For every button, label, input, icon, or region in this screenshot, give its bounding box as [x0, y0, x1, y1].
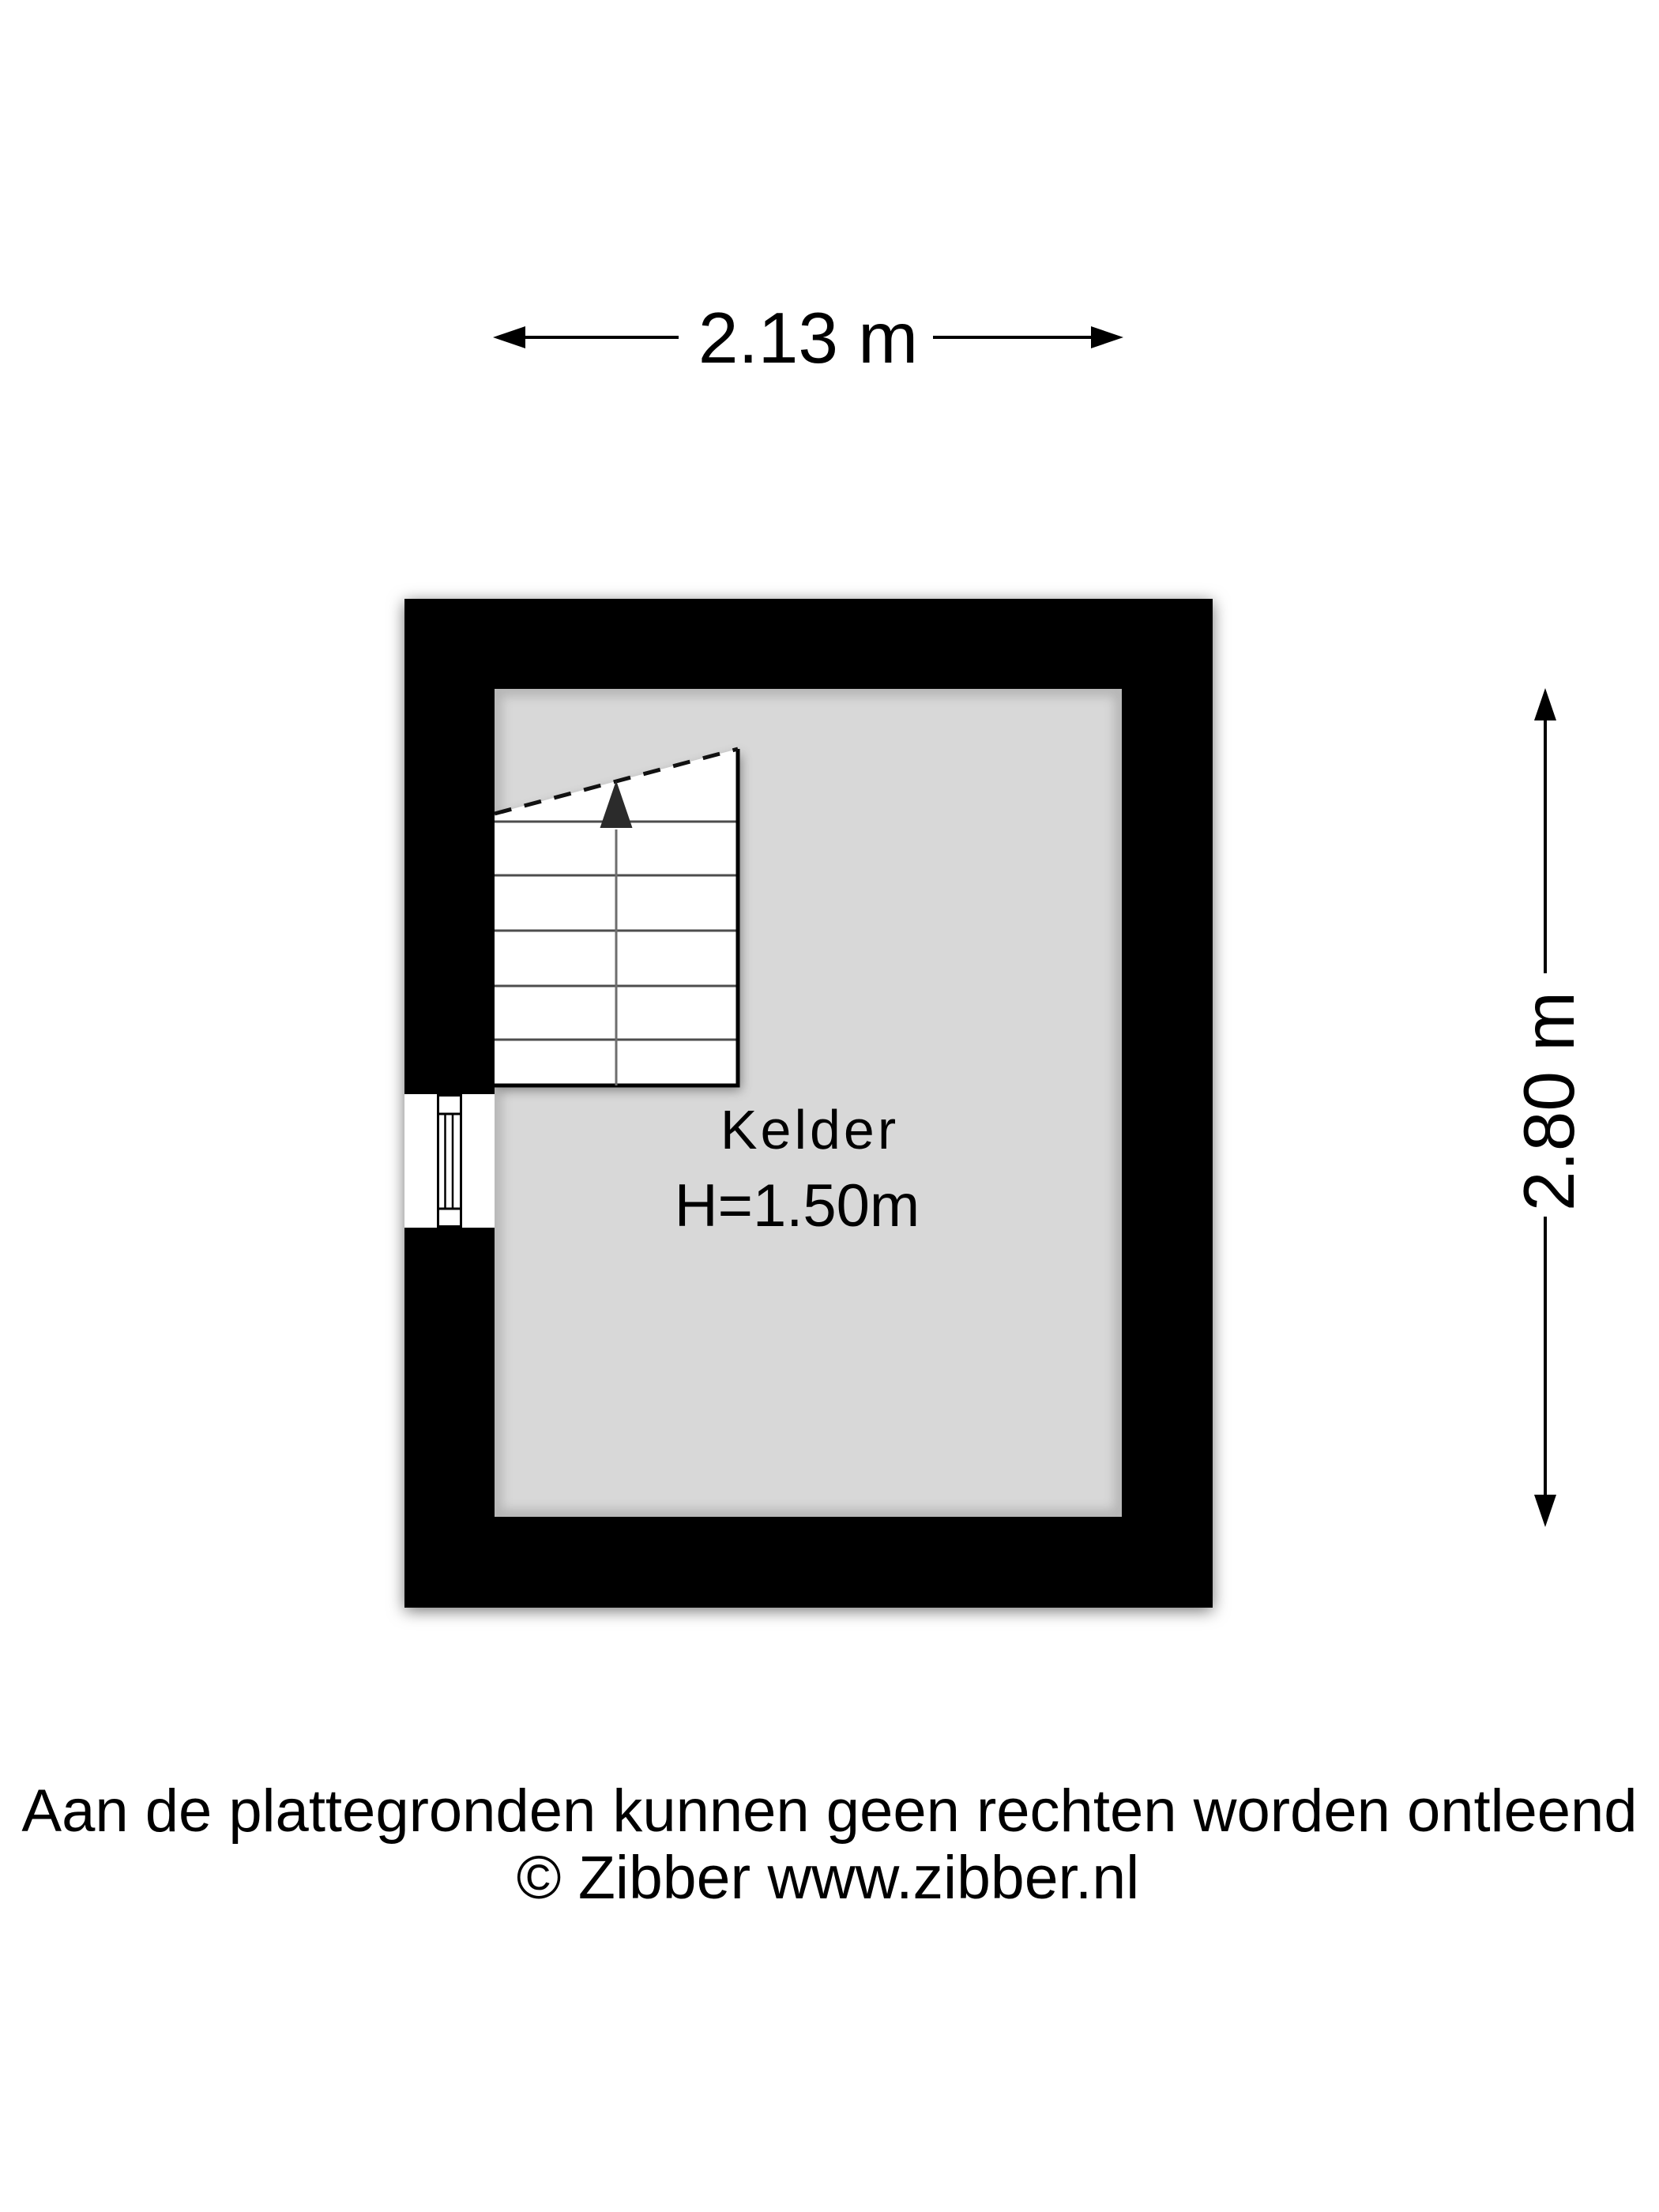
- svg-text:© Zibber www.zibber.nl: © Zibber www.zibber.nl: [517, 1844, 1140, 1912]
- svg-text:2.13 m: 2.13 m: [698, 299, 918, 378]
- svg-text:H=1.50m: H=1.50m: [675, 1172, 920, 1240]
- svg-text:Kelder: Kelder: [720, 1099, 899, 1161]
- svg-text:Aan de plattegronden kunnen ge: Aan de plattegronden kunnen geen rechten…: [21, 1777, 1637, 1845]
- svg-text:2.80 m: 2.80 m: [1510, 991, 1589, 1211]
